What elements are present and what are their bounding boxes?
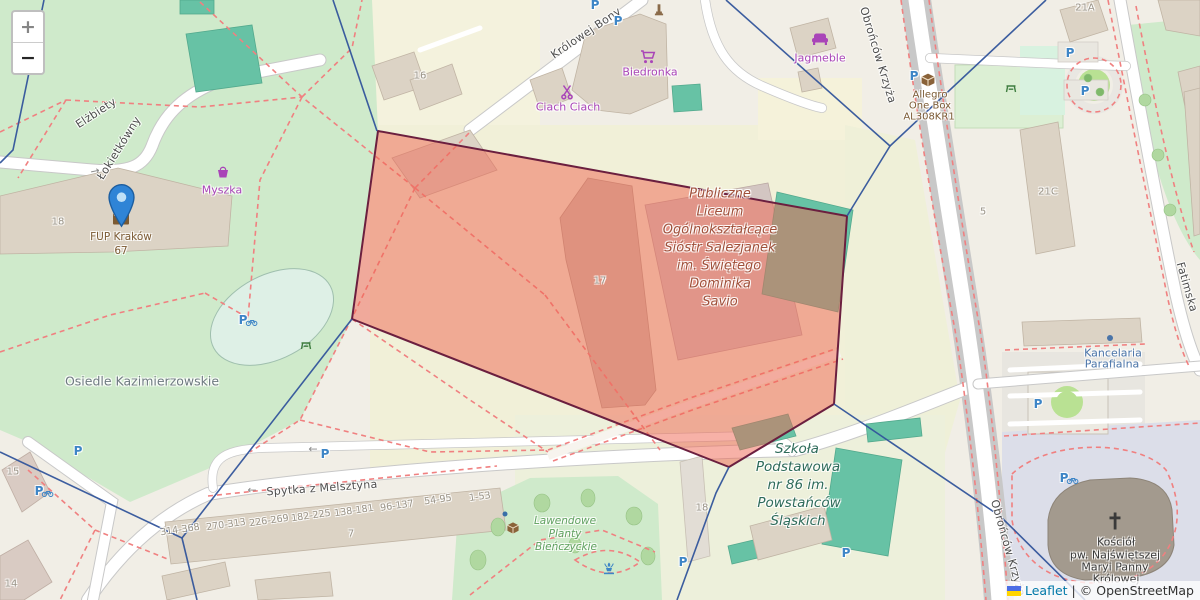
shop-basket-icon xyxy=(216,166,230,179)
fountain-icon xyxy=(602,561,617,575)
zoom-in-button[interactable]: + xyxy=(13,12,43,43)
house-number: 18 xyxy=(696,503,709,514)
poi-label-allegro-2: One Box xyxy=(909,101,951,112)
poi-label-szkola-3: nr 86 im. xyxy=(767,477,828,493)
poi-label-allegro-3: AL308KR1 xyxy=(903,112,954,123)
house-number: 17 xyxy=(594,276,607,287)
parking-icon: P xyxy=(1034,397,1043,411)
poi-label-liceum-6: Dominika xyxy=(689,277,751,292)
poi-label-kancelaria-2: Parafialna xyxy=(1085,358,1140,371)
parking-icon: P xyxy=(1066,46,1075,60)
poi-label-kosciol-1: Kościół xyxy=(1097,536,1135,549)
poi-dot xyxy=(1107,335,1113,341)
poi-label-lawendowe-2: Planty xyxy=(549,528,582,540)
poi-label-liceum-7: Savio xyxy=(702,295,737,310)
parcel-box-icon xyxy=(507,522,520,535)
poi-label-szkola-4: Powstańców xyxy=(757,495,840,511)
poi-label-allegro-1: Allegro xyxy=(913,90,948,101)
house-number: 15 xyxy=(7,467,20,478)
poi-label-lawendowe-1: Lawendowe xyxy=(534,515,596,527)
parcel-box-icon xyxy=(921,73,936,88)
house-number: 16 xyxy=(414,71,427,82)
poi-label-ciach-ciach: Ciach Ciach xyxy=(536,101,601,114)
poi-label-liceum-2: Liceum xyxy=(697,205,744,220)
poi-label-szkola-1: Szkoła xyxy=(775,441,819,457)
monument-icon xyxy=(654,4,665,17)
house-number: 5 xyxy=(980,207,986,218)
poi-label-fup-number: 67 xyxy=(114,245,127,257)
bicycle-parking-icon: P xyxy=(35,484,54,498)
house-number: 21C xyxy=(1038,187,1058,198)
poi-dot xyxy=(503,512,508,517)
leaflet-link[interactable]: Leaflet xyxy=(1025,583,1068,598)
shopping-cart-icon xyxy=(640,50,656,64)
poi-label-fup-name: FUP Kraków xyxy=(90,231,152,243)
house-number: 21A xyxy=(1075,3,1095,14)
picnic-table-icon xyxy=(1005,83,1018,93)
picnic-table-icon xyxy=(300,340,313,350)
attribution-bar: Leaflet | © OpenStreetMap xyxy=(999,581,1200,600)
poi-label-biedronka: Biedronka xyxy=(622,66,677,79)
scissors-icon xyxy=(561,85,573,100)
basemap-tiles xyxy=(0,0,1200,600)
poi-label-szkola-2: Podstawowa xyxy=(756,459,840,475)
poi-label-jagmeble: Jagmeble xyxy=(794,52,845,65)
parking-icon: P xyxy=(1081,84,1090,98)
parking-icon: P xyxy=(321,447,330,461)
oneway-arrow: ← xyxy=(308,443,317,456)
church-cross-icon xyxy=(1109,513,1122,530)
house-number: 18 xyxy=(52,217,65,228)
attribution-separator: | xyxy=(1072,583,1076,598)
parking-icon: P xyxy=(74,444,83,458)
poi-label-liceum-4: Sióstr Salezjanek xyxy=(664,241,775,256)
sofa-icon xyxy=(811,33,829,46)
poi-label-szkola-5: Śląskich xyxy=(770,513,825,529)
zoom-control: + − xyxy=(11,10,45,75)
bicycle-parking-icon: P xyxy=(1060,471,1079,485)
poi-label-liceum-1: Publiczne xyxy=(689,187,751,202)
poi-label-osiedle: Osiedle Kazimierzowskie xyxy=(65,374,219,389)
map-marker-pin[interactable] xyxy=(108,183,135,232)
parking-icon: P xyxy=(910,69,919,83)
poi-label-lawendowe-3: Bieńczyckie xyxy=(535,541,597,553)
map-canvas[interactable]: Elżbiety Łokietkówny Spytka z Melsztyna … xyxy=(0,0,1200,600)
house-number: 7 xyxy=(348,529,354,540)
poi-label-liceum-3: Ogólnokształcące xyxy=(663,223,777,238)
bicycle-parking-icon: P xyxy=(239,313,258,327)
ukraine-flag-icon xyxy=(1007,586,1021,596)
parking-icon: P xyxy=(842,546,851,560)
oneway-arrow: ← xyxy=(247,484,256,497)
parking-icon: P xyxy=(614,14,623,28)
openstreetmap-link[interactable]: © OpenStreetMap xyxy=(1080,583,1194,598)
zoom-out-button[interactable]: − xyxy=(13,43,43,73)
poi-label-myszka: Myszka xyxy=(202,184,242,197)
parking-icon: P xyxy=(679,555,688,569)
parking-icon: P xyxy=(591,0,600,12)
house-number: 14 xyxy=(5,579,18,590)
poi-label-liceum-5: im. Świętego xyxy=(677,259,761,274)
